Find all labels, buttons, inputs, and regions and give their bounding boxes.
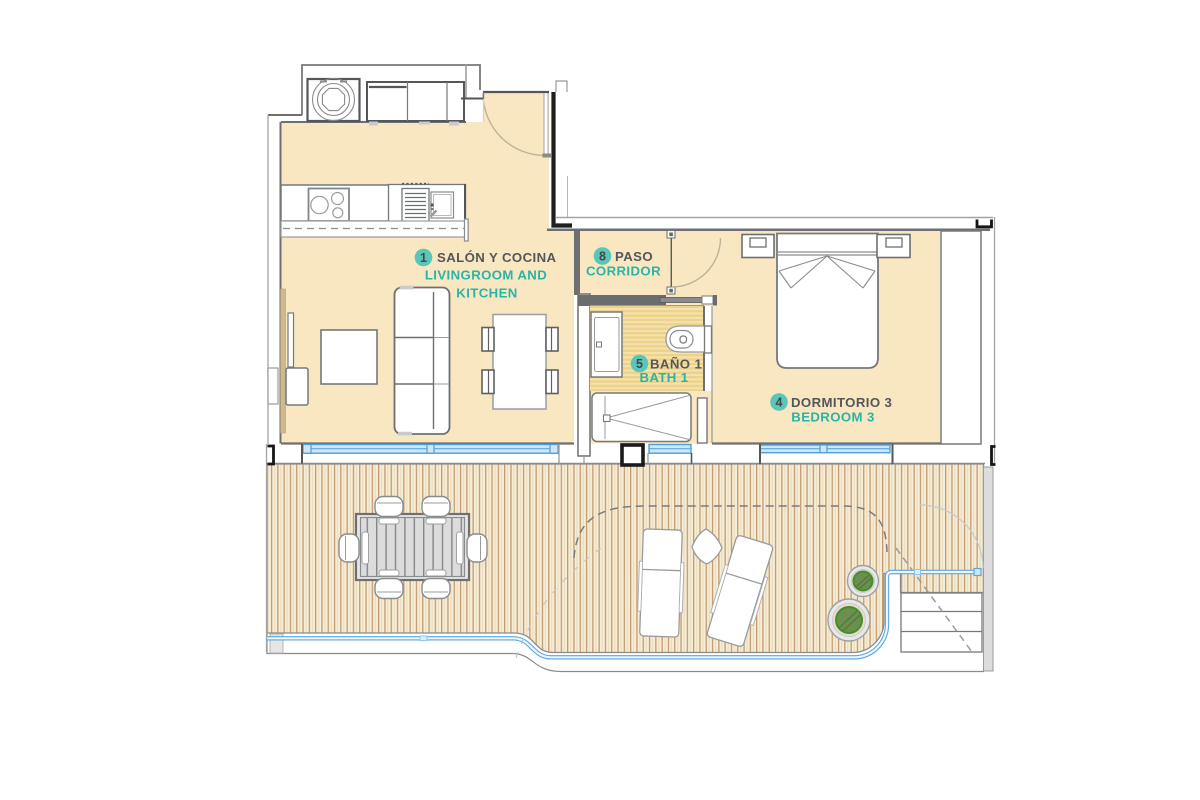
svg-text:BEDROOM 3: BEDROOM 3 (791, 410, 874, 425)
svg-text:PASO: PASO (615, 249, 653, 264)
svg-text:SALÓN Y COCINA: SALÓN Y COCINA (437, 250, 556, 265)
svg-text:CORRIDOR: CORRIDOR (586, 264, 661, 279)
svg-text:KITCHEN: KITCHEN (456, 286, 517, 301)
svg-text:DORMITORIO 3: DORMITORIO 3 (791, 395, 892, 410)
svg-text:1: 1 (420, 251, 427, 265)
svg-text:LIVINGROOM AND: LIVINGROOM AND (425, 268, 547, 283)
svg-text:4: 4 (776, 395, 783, 409)
svg-text:8: 8 (599, 249, 606, 263)
svg-text:5: 5 (636, 357, 643, 371)
svg-text:BATH 1: BATH 1 (639, 370, 688, 385)
